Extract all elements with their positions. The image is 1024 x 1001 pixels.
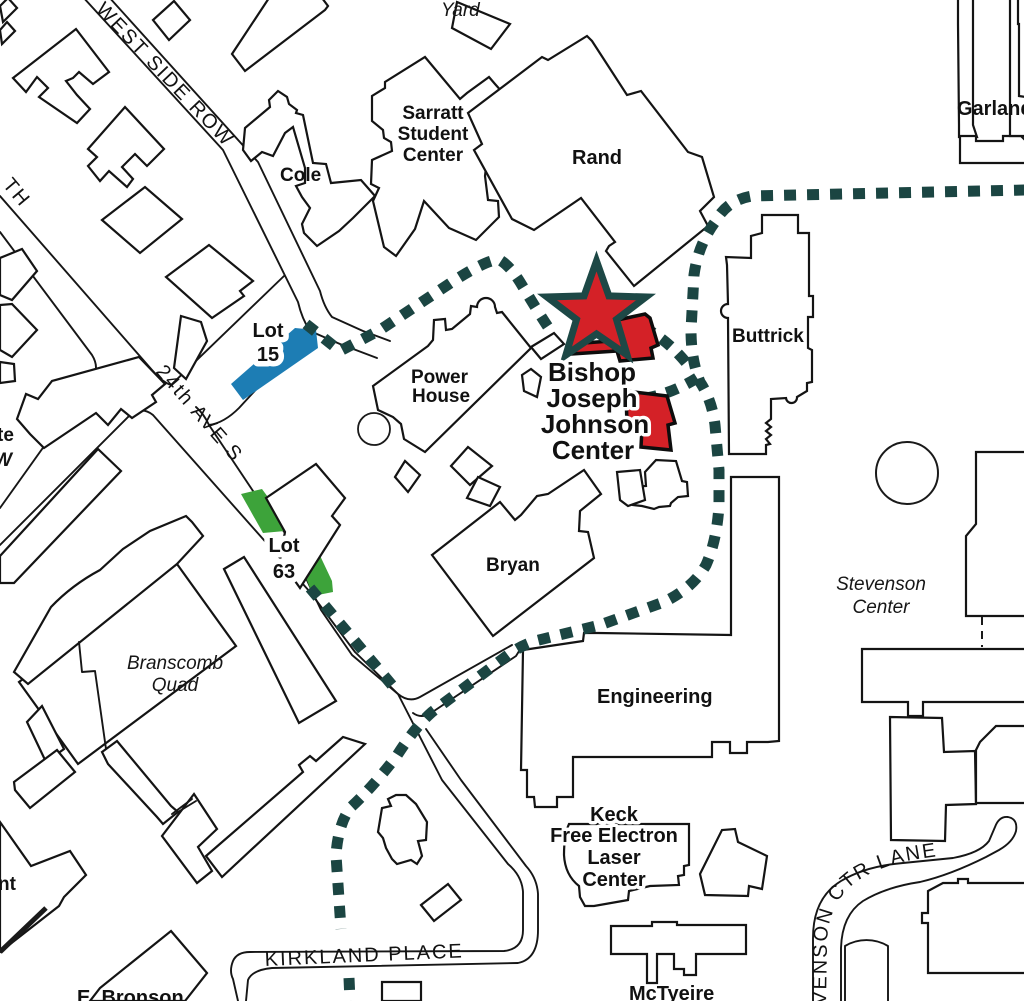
svg-text:Lot: Lot (268, 535, 299, 557)
svg-text:Lot: Lot (252, 320, 283, 342)
svg-text:Student: Student (398, 124, 469, 145)
svg-text:Free Electron: Free Electron (550, 825, 678, 847)
svg-text:Cole: Cole (280, 165, 321, 186)
svg-text:63: 63 (273, 561, 295, 583)
svg-text:nt: nt (0, 874, 17, 895)
svg-text:Bryan: Bryan (486, 555, 540, 576)
svg-text:Center: Center (582, 869, 646, 891)
svg-text:Rand: Rand (572, 147, 622, 169)
svg-text:Power: Power (411, 367, 469, 388)
svg-text:Keck: Keck (590, 804, 639, 826)
svg-text:Stevenson: Stevenson (836, 574, 926, 595)
svg-text:Buttrick: Buttrick (732, 326, 804, 347)
svg-text:te: te (0, 425, 14, 446)
svg-text:Engineering: Engineering (597, 686, 713, 708)
svg-text:Center: Center (403, 145, 464, 166)
svg-text:E. Bronson: E. Bronson (77, 987, 184, 1001)
svg-text:Quad: Quad (152, 675, 200, 696)
svg-text:Garland: Garland (957, 98, 1024, 120)
svg-text:Laser: Laser (587, 847, 641, 869)
svg-text:Sarratt: Sarratt (402, 103, 464, 124)
svg-text:W: W (0, 450, 14, 471)
svg-text:15: 15 (257, 344, 279, 366)
svg-text:Center: Center (852, 597, 910, 618)
svg-text:Branscomb: Branscomb (127, 653, 223, 674)
svg-text:Center: Center (552, 435, 634, 465)
svg-text:McTyeire: McTyeire (629, 983, 714, 1001)
svg-text:Yard: Yard (441, 0, 481, 21)
svg-text:House: House (412, 386, 470, 407)
